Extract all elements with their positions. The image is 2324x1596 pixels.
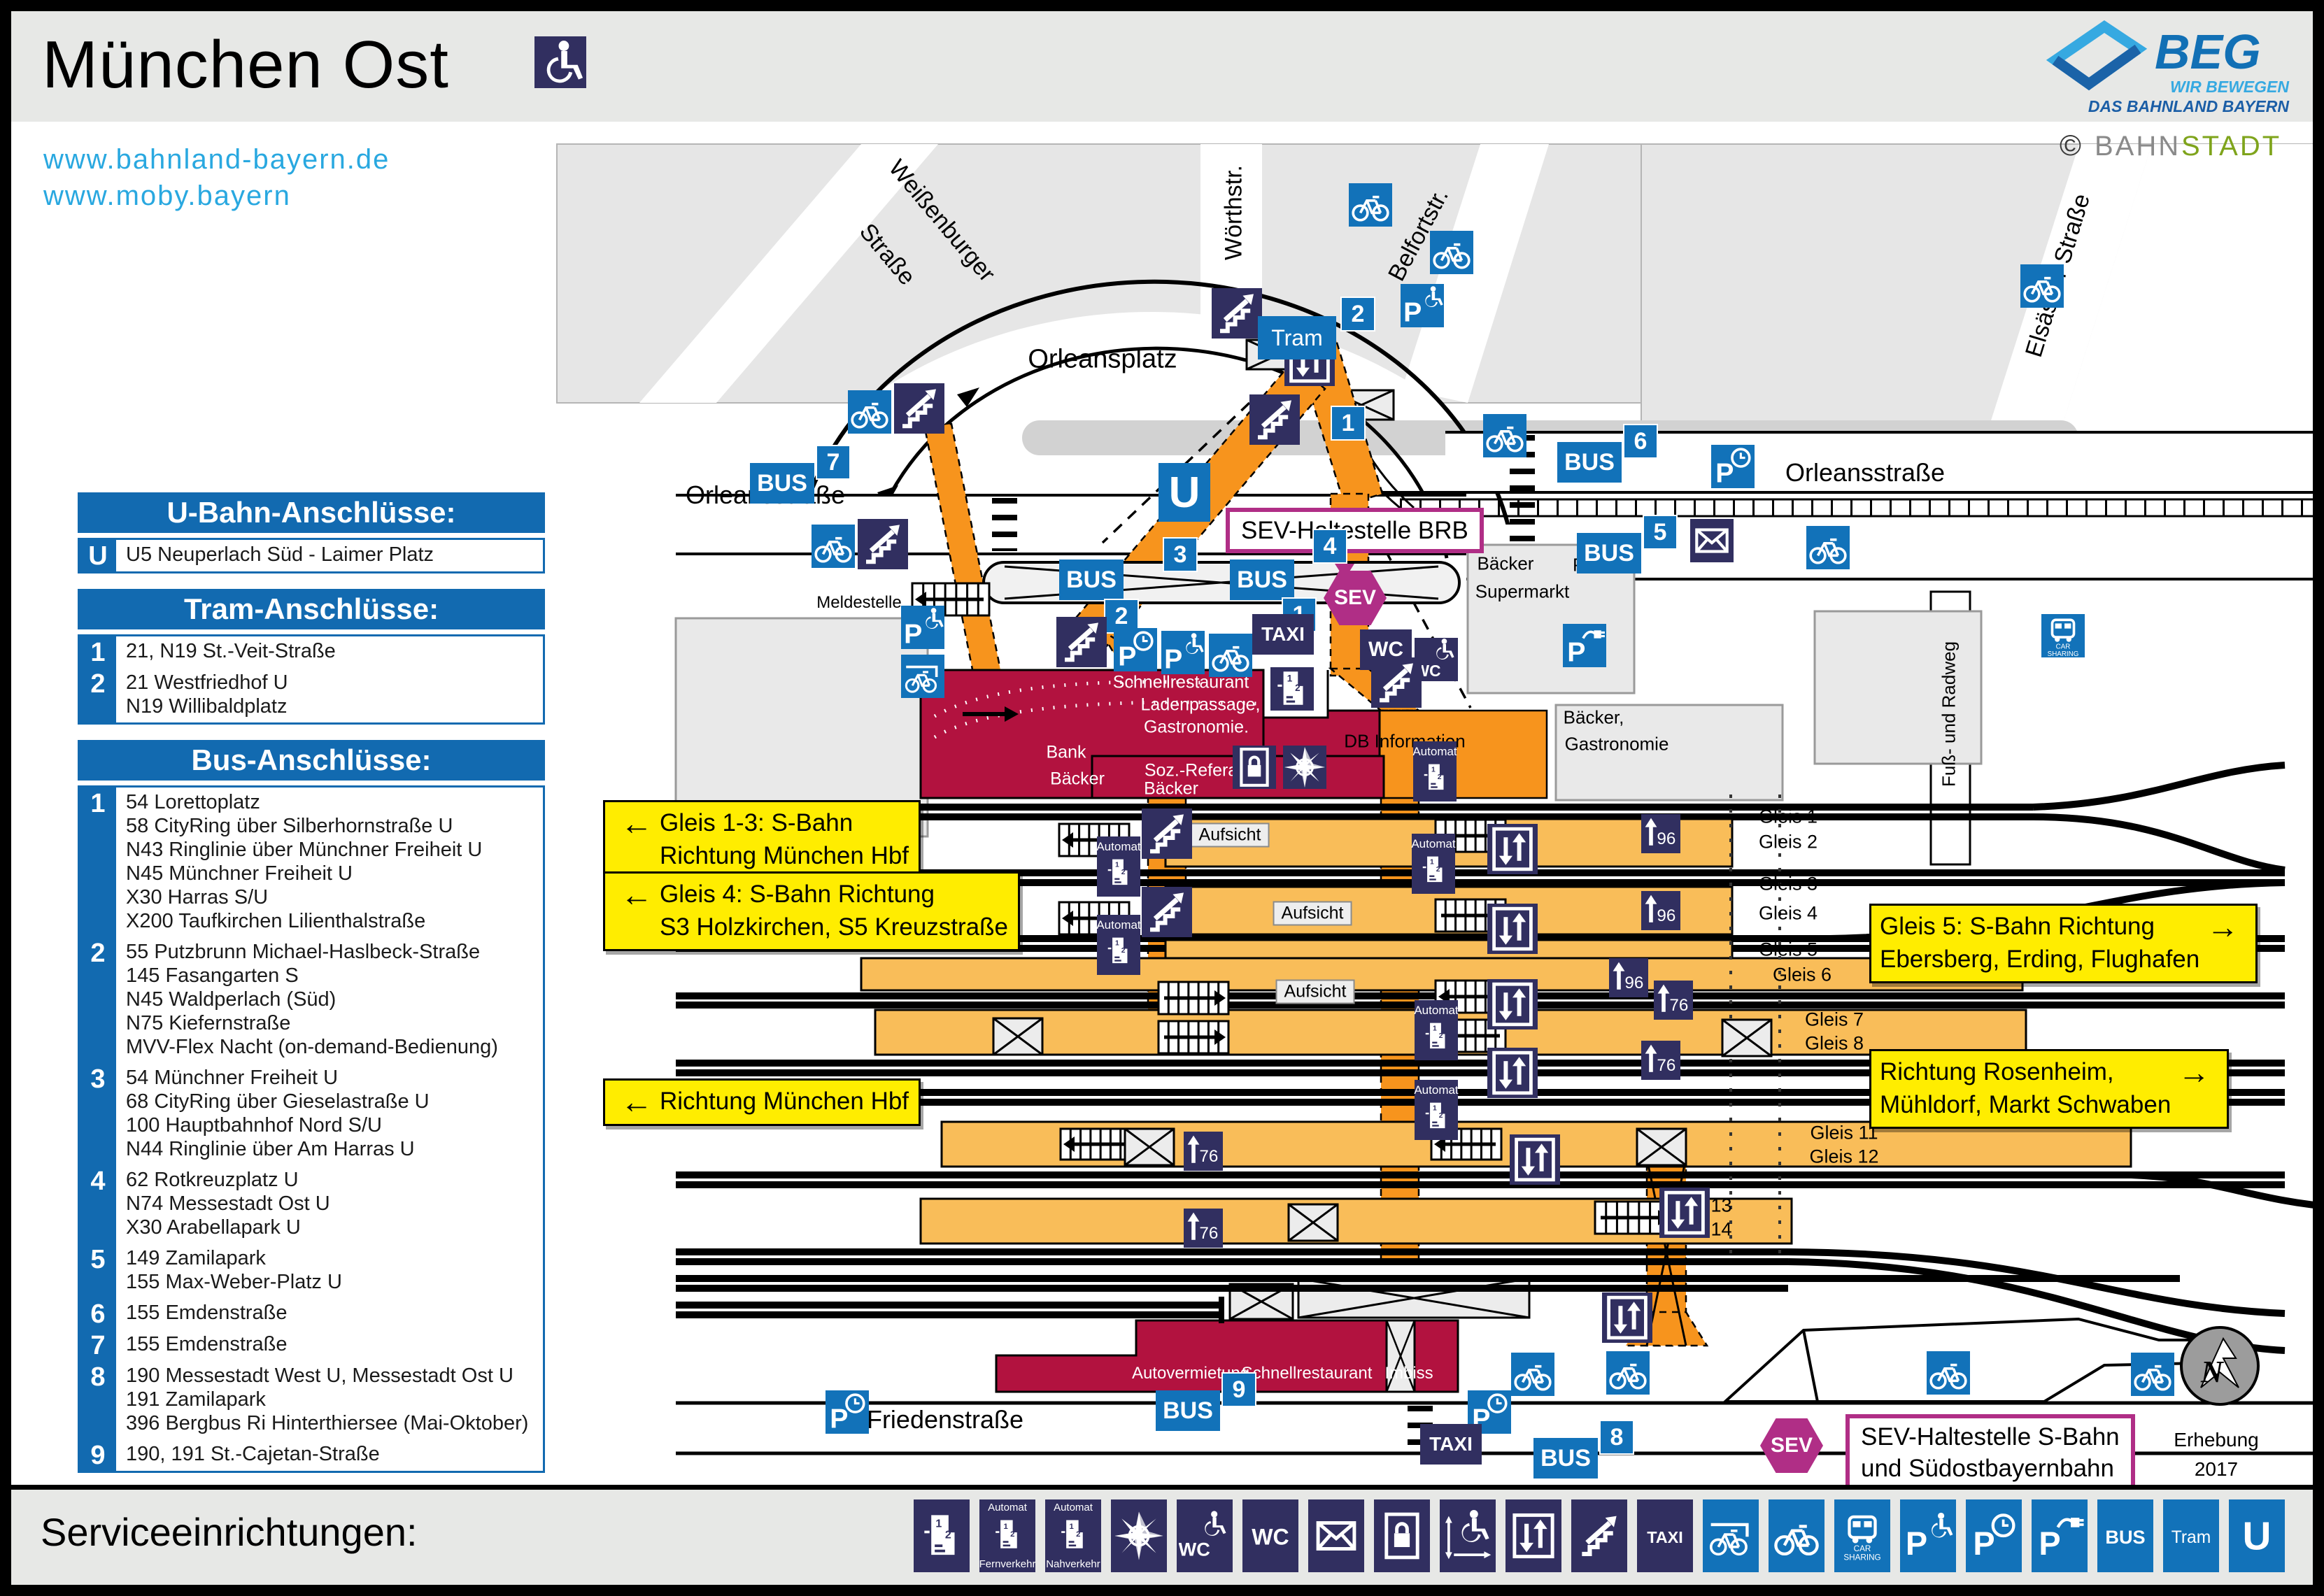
svg-text:BAHN: BAHN bbox=[2095, 131, 2181, 162]
stairs-icon bbox=[1159, 982, 1228, 1014]
connection-row: 121, N19 St.-Veit-Straße bbox=[80, 636, 543, 668]
map-label: Orleansstraße bbox=[1785, 458, 1945, 487]
svg-text:WC: WC bbox=[1179, 1538, 1210, 1560]
platform-height-badge: 96 bbox=[1641, 891, 1680, 930]
map-label: Gleis 3 bbox=[1759, 874, 1818, 895]
svg-text:Tram: Tram bbox=[2171, 1528, 2211, 1547]
federal-police-icon bbox=[1111, 1499, 1167, 1572]
parking-time-icon: P bbox=[1711, 445, 1755, 488]
escalator-icon bbox=[858, 519, 908, 569]
svg-text:P: P bbox=[1567, 637, 1585, 667]
covered-bike-parking-icon bbox=[1703, 1499, 1759, 1572]
connection-row: 354 Münchner Freiheit U68 CityRing über … bbox=[80, 1063, 543, 1165]
sidebar-section-list: 121, N19 St.-Veit-Straße221 Westfriedhof… bbox=[78, 634, 545, 725]
elevator-icon bbox=[1487, 979, 1538, 1029]
bus-stop-icon: BUS bbox=[1230, 560, 1294, 600]
stop-number-badge: 7 bbox=[80, 1330, 116, 1361]
direction-sign-2: ←Richtung München Hbf bbox=[603, 1078, 921, 1126]
stop-number-badge: 2 bbox=[80, 668, 116, 722]
escalator-icon bbox=[1371, 657, 1422, 708]
bike-parking-icon bbox=[1927, 1351, 1970, 1395]
sev-stop-sign-0: SEV-Haltestelle BRB bbox=[1226, 508, 1484, 553]
north-compass-icon: N bbox=[2181, 1327, 2258, 1404]
parking-time-icon: P bbox=[1114, 628, 1157, 671]
parking-time-icon: P bbox=[1966, 1499, 2022, 1572]
website-link-1[interactable]: www.moby.bayern bbox=[43, 178, 390, 214]
ticket-machine-icon: Automat12 bbox=[1413, 741, 1457, 801]
svg-text:2: 2 bbox=[1439, 1112, 1443, 1120]
bike-parking-icon bbox=[1209, 634, 1252, 677]
stop-number-badge: 9 bbox=[80, 1439, 116, 1471]
svg-text:©: © bbox=[2060, 129, 2081, 162]
escalator-icon bbox=[1056, 617, 1107, 667]
staff-office-label: Aufsicht bbox=[1191, 823, 1270, 848]
tram-stop-icon: Tram bbox=[1258, 316, 1336, 359]
federal-police-icon bbox=[1283, 746, 1326, 789]
svg-text:N: N bbox=[2200, 1355, 2225, 1389]
svg-text:2: 2 bbox=[1295, 683, 1300, 693]
taxi-icon: TAXI bbox=[1637, 1499, 1693, 1572]
svg-text:P: P bbox=[830, 1404, 848, 1434]
ticket-machine-longdistance-icon: Automat12Fernverkehr bbox=[979, 1499, 1035, 1572]
sev-stop-sign-1: SEV-Haltestelle S-Bahnund Südostbayernba… bbox=[1845, 1414, 2135, 1491]
wc-accessible-icon: WC bbox=[1177, 1499, 1233, 1572]
connection-lines: 55 Putzbrunn Michael-Haslbeck-Straße145 … bbox=[116, 937, 506, 1063]
ticket-machine-local-icon: Automat12Nahverkehr bbox=[1045, 1499, 1101, 1572]
arrow-left-icon: ← bbox=[614, 1085, 660, 1118]
taxi-icon: TAXI bbox=[1420, 1424, 1482, 1465]
sidebar-section-list: 154 Lorettoplatz58 CityRing über Silberh… bbox=[78, 785, 545, 1473]
bus-stop-icon: BUS bbox=[1156, 1390, 1220, 1431]
stairs-icon bbox=[1159, 1021, 1228, 1053]
locker-icon bbox=[1233, 746, 1276, 789]
ticket-machine-icon: Automat12 bbox=[1097, 836, 1140, 897]
connection-row: UU5 Neuperlach Süd - Laimer Platz bbox=[80, 540, 543, 571]
bike-parking-icon bbox=[1483, 414, 1526, 457]
svg-text:P: P bbox=[1403, 297, 1422, 327]
stop-number-badge: 6 bbox=[1623, 424, 1658, 459]
map-label: Gleis 2 bbox=[1759, 832, 1818, 853]
stop-number-badge: 6 bbox=[80, 1298, 116, 1330]
connection-lines: U5 Neuperlach Süd - Laimer Platz bbox=[116, 540, 442, 571]
bus-loop bbox=[984, 562, 1459, 603]
platform-height-badge: 96 bbox=[1609, 958, 1648, 997]
arrow-right-icon: → bbox=[2199, 910, 2246, 976]
platform-height-badge: 96 bbox=[1641, 814, 1680, 853]
closed-area-box bbox=[1298, 1278, 1529, 1318]
mailbox-icon bbox=[1308, 1499, 1364, 1572]
svg-text:CAR: CAR bbox=[1854, 1544, 1871, 1553]
bus-icon: BUS bbox=[2097, 1499, 2153, 1572]
connection-lines: 190 Messestadt West U, Messestadt Ost U1… bbox=[116, 1361, 537, 1439]
direction-sign-4: Richtung Rosenheim,Mühldorf, Markt Schwa… bbox=[1869, 1049, 2229, 1129]
legend-icon-row: 12Automat12FernverkehrAutomat12Nahverkeh… bbox=[914, 1499, 2285, 1572]
connection-row: 255 Putzbrunn Michael-Haslbeck-Straße145… bbox=[80, 937, 543, 1063]
svg-text:1: 1 bbox=[1431, 766, 1436, 774]
legend-bar: Serviceeinrichtungen: 12Automat12Fernver… bbox=[11, 1485, 2313, 1585]
escalator-icon bbox=[894, 383, 944, 434]
svg-text:1: 1 bbox=[1430, 858, 1434, 866]
parking-disabled-icon: P bbox=[1900, 1499, 1956, 1572]
ticket-machine-icon: Automat12 bbox=[1097, 915, 1140, 975]
stop-number-badge: 5 bbox=[80, 1244, 116, 1298]
ticket-machine-icon: Automat12 bbox=[1412, 834, 1455, 894]
bike-parking-icon bbox=[1349, 183, 1392, 227]
bus-stop-icon: BUS bbox=[750, 463, 814, 504]
escalator-icon bbox=[1571, 1499, 1627, 1572]
platform-height-badge: 76 bbox=[1654, 981, 1693, 1020]
svg-text:96: 96 bbox=[1624, 974, 1643, 992]
escalator-icon bbox=[1142, 887, 1192, 937]
platform-height-badge: 76 bbox=[1184, 1132, 1223, 1171]
closed-area-box bbox=[1722, 1020, 1771, 1056]
svg-text:2: 2 bbox=[1076, 1530, 1080, 1539]
stop-number-badge: 8 bbox=[80, 1361, 116, 1439]
svg-text:2: 2 bbox=[1439, 1032, 1443, 1040]
svg-text:2: 2 bbox=[1436, 866, 1440, 874]
covered-bike-parking-icon bbox=[901, 655, 944, 698]
map-label: Wörthstr. bbox=[1221, 165, 1248, 260]
map-label: Gastronomie. bbox=[1144, 718, 1249, 738]
connection-row: 462 Rotkreuzplatz UN74 Messestadt Ost UX… bbox=[80, 1165, 543, 1244]
svg-text:1: 1 bbox=[1115, 939, 1119, 947]
svg-text:SHARING: SHARING bbox=[1843, 1553, 1880, 1562]
connection-row: 221 Westfriedhof UN19 Willibaldplatz bbox=[80, 668, 543, 722]
sidebar-section-title: Bus-Anschlüsse: bbox=[78, 740, 545, 781]
svg-text:DAS BAHNLAND BAYERN: DAS BAHNLAND BAYERN bbox=[2088, 97, 2289, 115]
closed-area-box bbox=[1637, 1129, 1686, 1165]
parking-disabled-icon: P bbox=[901, 606, 944, 649]
map-label: Soz.-Referat bbox=[1145, 761, 1242, 781]
bike-parking-icon bbox=[2131, 1353, 2174, 1396]
bike-parking-icon bbox=[848, 390, 891, 434]
svg-text:P: P bbox=[1715, 458, 1734, 488]
bike-parking-icon bbox=[2020, 264, 2064, 308]
svg-text:P: P bbox=[1164, 644, 1182, 674]
connection-row: 8190 Messestadt West U, Messestadt Ost U… bbox=[80, 1361, 543, 1439]
connections-sidebar: U-Bahn-Anschlüsse:UU5 Neuperlach Süd - L… bbox=[78, 492, 545, 1488]
map-label: Bank bbox=[1047, 743, 1086, 763]
elevator-icon bbox=[1487, 824, 1538, 874]
svg-text:STADT: STADT bbox=[2181, 131, 2281, 162]
svg-text:1: 1 bbox=[935, 1518, 942, 1530]
connection-lines: 21 Westfriedhof UN19 Willibaldplatz bbox=[116, 668, 297, 722]
tram-icon: Tram bbox=[2163, 1499, 2219, 1572]
svg-text:2: 2 bbox=[1010, 1530, 1014, 1539]
svg-text:2: 2 bbox=[1121, 947, 1126, 955]
stop-number-badge: 9 bbox=[1221, 1372, 1256, 1407]
svg-text:1: 1 bbox=[1115, 861, 1119, 869]
station-map-page: N München Ost www.bahnland-bayern.dewww.… bbox=[0, 0, 2324, 1596]
arrow-left-icon: ← bbox=[614, 806, 660, 872]
map-label: Orleansplatz bbox=[1028, 345, 1177, 375]
stop-number-badge: 2 bbox=[1340, 297, 1375, 332]
platform-height-badge: 76 bbox=[1184, 1209, 1223, 1248]
map-label: Friedenstraße bbox=[867, 1405, 1023, 1434]
parking-charging-icon: P bbox=[1563, 624, 1606, 667]
map-label: Gleis 1 bbox=[1759, 806, 1818, 828]
connection-lines: 21, N19 St.-Veit-Straße bbox=[116, 636, 344, 668]
elevator-icon bbox=[1487, 904, 1538, 954]
stop-number-badge: 2 bbox=[80, 937, 116, 1063]
map-label: Bäcker bbox=[1144, 779, 1198, 799]
svg-text:76: 76 bbox=[1669, 996, 1688, 1015]
connection-lines: 190, 191 St.-Cajetan-Straße bbox=[116, 1439, 388, 1471]
bus-stop-icon: BUS bbox=[1533, 1438, 1598, 1479]
svg-text:WIR BEWEGEN: WIR BEWEGEN bbox=[2170, 78, 2289, 96]
svg-text:1: 1 bbox=[1433, 1025, 1437, 1032]
elevator-icon bbox=[1505, 1499, 1561, 1572]
svg-text:P: P bbox=[1906, 1525, 1927, 1562]
beg-logo: BEG WIR BEWEGEN DAS BAHNLAND BAYERN bbox=[2043, 14, 2295, 124]
bike-parking-icon bbox=[1769, 1499, 1825, 1572]
arrow-right-icon: → bbox=[2171, 1055, 2217, 1121]
direction-sign-0: ←Gleis 1-3: S-BahnRichtung München Hbf bbox=[603, 800, 921, 880]
elevator-icon bbox=[1487, 1048, 1538, 1098]
map-label: Meldestelle bbox=[816, 593, 901, 613]
stop-number-badge: 8 bbox=[1599, 1420, 1634, 1455]
wheelchair-icon bbox=[534, 36, 586, 88]
u-bahn-icon: U bbox=[2229, 1499, 2285, 1572]
stop-number-badge: 1 bbox=[1331, 406, 1366, 441]
svg-text:1: 1 bbox=[1004, 1523, 1008, 1531]
ticket-machine-icon: 12 bbox=[1270, 667, 1314, 711]
mailbox-icon bbox=[1690, 519, 1734, 562]
sidebar-section-list: UU5 Neuperlach Süd - Laimer Platz bbox=[78, 538, 545, 573]
bike-parking-icon bbox=[1511, 1353, 1554, 1396]
accessible-facilities-icon bbox=[1440, 1499, 1496, 1572]
stop-number-badge: 4 bbox=[1312, 529, 1347, 564]
bike-parking-icon bbox=[1806, 526, 1850, 569]
sidebar-section-title: Tram-Anschlüsse: bbox=[78, 589, 545, 629]
svg-text:2: 2 bbox=[945, 1529, 951, 1541]
website-links: www.bahnland-bayern.dewww.moby.bayern bbox=[43, 141, 390, 214]
parking-time-icon: P bbox=[826, 1390, 869, 1434]
bahnstadt-logo: © BAHN STADT bbox=[2058, 127, 2289, 167]
parking-disabled-icon: P bbox=[1161, 631, 1205, 674]
bike-parking-icon bbox=[1430, 231, 1473, 274]
svg-text:1: 1 bbox=[1070, 1523, 1074, 1531]
direction-sign-3: Gleis 5: S-Bahn RichtungEbersberg, Erdin… bbox=[1869, 904, 2258, 983]
svg-text:1: 1 bbox=[1287, 674, 1293, 684]
sidebar-section-title: U-Bahn-Anschlüsse: bbox=[78, 492, 545, 533]
map-label: Gleis 5 bbox=[1759, 939, 1818, 961]
map-label: Bäcker bbox=[1478, 553, 1534, 575]
elevator-icon bbox=[1510, 1134, 1560, 1185]
svg-text:SHARING: SHARING bbox=[2048, 650, 2079, 657]
map-label: Gleis 4 bbox=[1759, 903, 1818, 925]
stop-number-badge: U bbox=[80, 540, 116, 571]
sidebar-section-1: Tram-Anschlüsse:121, N19 St.-Veit-Straße… bbox=[78, 589, 545, 725]
map-label: Gleis 12 bbox=[1809, 1146, 1878, 1168]
svg-text:BEG: BEG bbox=[2155, 24, 2261, 79]
map-label: Gastronomie bbox=[1565, 734, 1669, 755]
svg-text:WC: WC bbox=[1252, 1524, 1289, 1549]
ticket-machine-icon: Automat12 bbox=[1415, 1080, 1458, 1140]
ticket-machine-icon: Automat12 bbox=[1415, 1000, 1458, 1060]
bus-stop-icon: BUS bbox=[1059, 560, 1124, 600]
svg-text:P: P bbox=[2039, 1525, 2060, 1562]
svg-text:76: 76 bbox=[1199, 1224, 1218, 1243]
parking-charging-icon: P bbox=[2032, 1499, 2088, 1572]
map-label: Fuß- und Radweg bbox=[1939, 641, 1960, 787]
svg-text:1: 1 bbox=[1433, 1104, 1437, 1112]
connection-row: 6155 Emdenstraße bbox=[80, 1298, 543, 1330]
arrow-left-icon: ← bbox=[614, 878, 660, 943]
car-sharing-icon: CARSHARING bbox=[1834, 1499, 1890, 1572]
car-sharing-icon: CARSHARING bbox=[2041, 614, 2085, 657]
ticket-machine-icon: 12 bbox=[914, 1499, 970, 1572]
svg-text:P: P bbox=[1118, 641, 1136, 671]
sidebar-section-2: Bus-Anschlüsse:154 Lorettoplatz58 CityRi… bbox=[78, 740, 545, 1473]
stop-number-badge: 4 bbox=[80, 1165, 116, 1244]
connection-lines: 149 Zamilapark155 Max-Weber-Platz U bbox=[116, 1244, 350, 1298]
svg-text:P: P bbox=[1973, 1525, 1994, 1562]
closed-area-box bbox=[1125, 1129, 1174, 1165]
bus-stop-icon: BUS bbox=[1577, 533, 1641, 573]
escalator-icon bbox=[1142, 808, 1192, 859]
connection-row: 9190, 191 St.-Cajetan-Straße bbox=[80, 1439, 543, 1471]
map-label: Ladenpassage, bbox=[1141, 695, 1261, 715]
locker-icon bbox=[1374, 1499, 1430, 1572]
map-label: Bäcker, bbox=[1564, 707, 1624, 729]
map-label: Bäcker bbox=[1050, 769, 1105, 790]
wc-icon: WC bbox=[1242, 1499, 1298, 1572]
elevator-icon bbox=[1659, 1188, 1710, 1238]
page-title: München Ost bbox=[42, 27, 449, 104]
staff-office-label: Aufsicht bbox=[1273, 902, 1352, 926]
svg-text:76: 76 bbox=[1657, 1056, 1675, 1075]
svg-text:P: P bbox=[904, 619, 922, 649]
svg-text:U: U bbox=[2243, 1515, 2272, 1559]
svg-text:BUS: BUS bbox=[2105, 1526, 2145, 1548]
stop-number-badge: 7 bbox=[816, 445, 851, 480]
map-label: Gleis 8 bbox=[1805, 1033, 1864, 1055]
stop-number-badge: 3 bbox=[80, 1063, 116, 1165]
sidebar-section-0: U-Bahn-Anschlüsse:UU5 Neuperlach Süd - L… bbox=[78, 492, 545, 573]
staff-office-label: Aufsicht bbox=[1276, 980, 1355, 1004]
map-label: Schnellrestaurant bbox=[1242, 1364, 1373, 1383]
closed-area-box bbox=[1289, 1204, 1338, 1241]
closed-area-box bbox=[993, 1018, 1042, 1055]
map-label: Gleis 7 bbox=[1805, 1009, 1864, 1031]
connection-lines: 62 Rotkreuzplatz UN74 Messestadt Ost UX3… bbox=[116, 1165, 339, 1244]
map-label: Imbiss bbox=[1384, 1364, 1433, 1383]
parking-disabled-icon: P bbox=[1401, 284, 1444, 327]
platform-height-badge: 76 bbox=[1641, 1041, 1680, 1080]
stop-number-badge: 5 bbox=[1643, 515, 1678, 550]
stop-number-badge: 1 bbox=[80, 636, 116, 668]
svg-text:2: 2 bbox=[1121, 869, 1126, 876]
legend-title: Serviceeinrichtungen: bbox=[41, 1509, 418, 1555]
connection-lines: 155 Emdenstraße bbox=[116, 1330, 296, 1361]
bike-parking-icon bbox=[1606, 1351, 1650, 1395]
stop-number-badge: 1 bbox=[80, 788, 116, 937]
bike-parking-icon bbox=[812, 525, 855, 568]
connection-row: 5149 Zamilapark155 Max-Weber-Platz U bbox=[80, 1244, 543, 1298]
svg-text:96: 96 bbox=[1657, 906, 1675, 925]
connection-lines: 155 Emdenstraße bbox=[116, 1298, 296, 1330]
map-label: Gleis 11 bbox=[1810, 1123, 1878, 1144]
website-link-0[interactable]: www.bahnland-bayern.de bbox=[43, 141, 390, 178]
map-label: Gleis 6 bbox=[1773, 964, 1831, 986]
connection-lines: 54 Münchner Freiheit U68 CityRing über G… bbox=[116, 1063, 438, 1165]
svg-text:76: 76 bbox=[1199, 1147, 1218, 1166]
u-bahn-icon: U bbox=[1159, 463, 1210, 522]
bus-stop-icon: BUS bbox=[1557, 442, 1622, 483]
elevator-icon bbox=[1602, 1292, 1652, 1343]
svg-text:TAXI: TAXI bbox=[1647, 1528, 1683, 1546]
connection-lines: 54 Lorettoplatz58 CityRing über Silberho… bbox=[116, 788, 490, 937]
connection-row: 7155 Emdenstraße bbox=[80, 1330, 543, 1361]
svg-text:2: 2 bbox=[1438, 774, 1442, 781]
svg-text:96: 96 bbox=[1657, 829, 1675, 848]
direction-sign-1: ←Gleis 4: S-Bahn RichtungS3 Holzkirchen,… bbox=[603, 871, 1020, 951]
escalator-icon bbox=[1212, 288, 1262, 339]
map-label: Supermarkt bbox=[1475, 581, 1569, 603]
stairs-icon bbox=[1061, 1129, 1131, 1160]
stop-number-badge: 3 bbox=[1163, 537, 1198, 572]
taxi-icon: TAXI bbox=[1252, 614, 1314, 655]
escalator-icon bbox=[1249, 394, 1300, 445]
connection-row: 154 Lorettoplatz58 CityRing über Silberh… bbox=[80, 788, 543, 937]
